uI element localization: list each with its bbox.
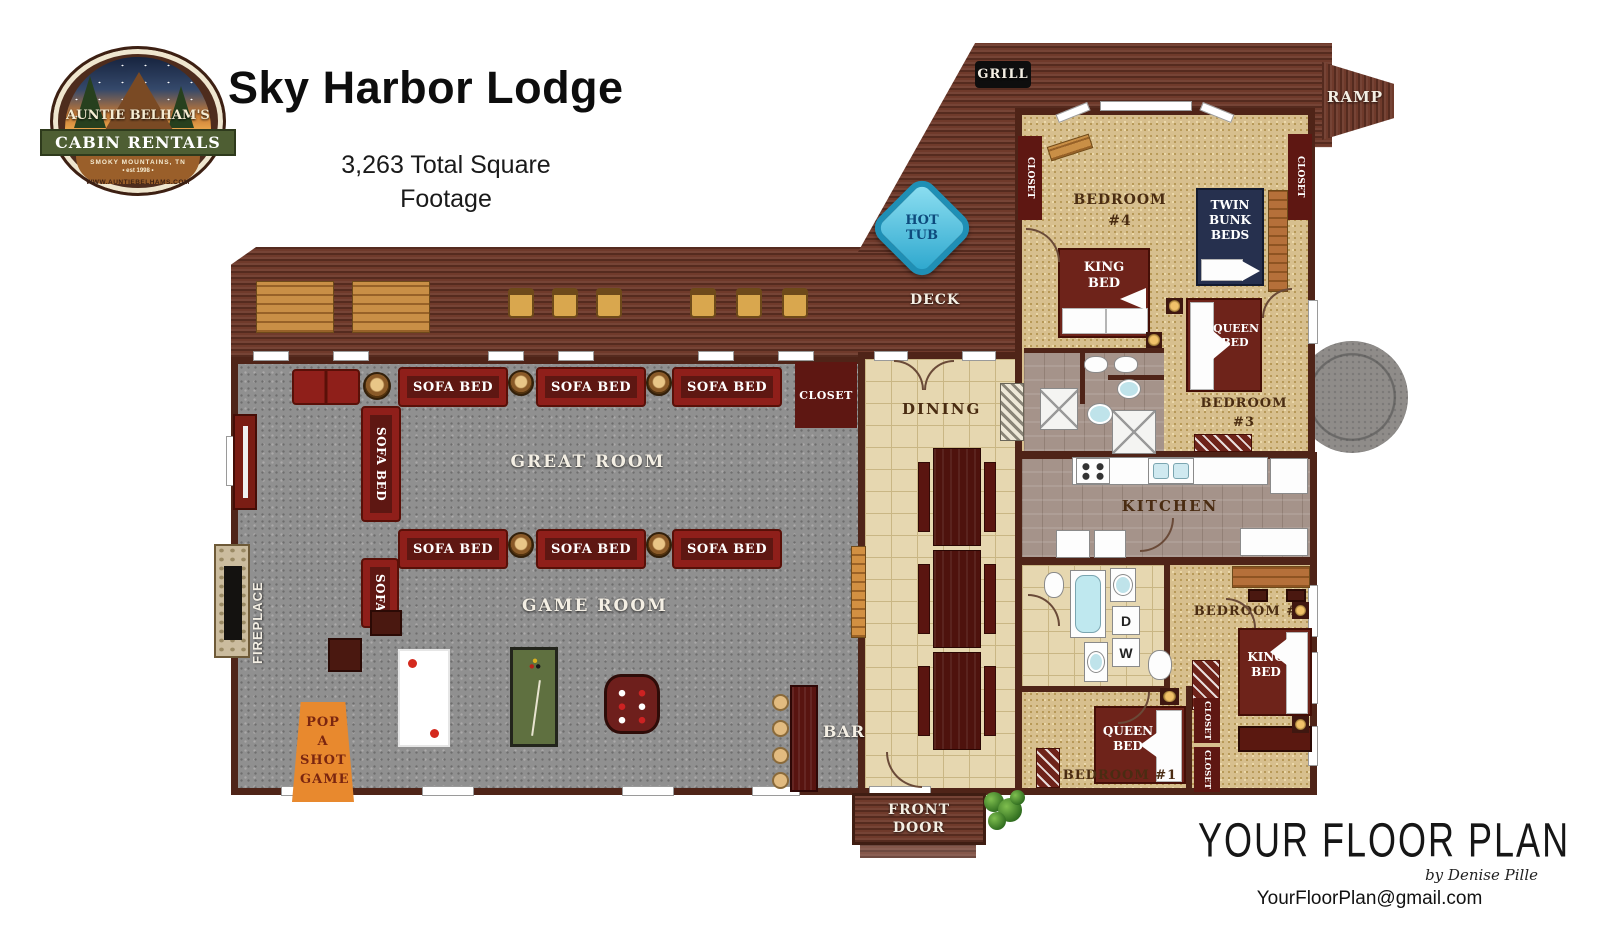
interior-wall (1080, 348, 1085, 404)
porch-step (860, 845, 976, 858)
dining-table (918, 652, 996, 750)
sofa-bed-label: SOFA BED (681, 538, 773, 560)
sink-basin (1153, 463, 1169, 479)
sofa-bed: SOFA BED (536, 367, 646, 407)
bar-stool (772, 772, 789, 789)
bedroom4-label: BEDROOM #4 (1072, 190, 1168, 232)
luggage-rack (1194, 434, 1252, 452)
sofa-bed-label: SOFA BED (407, 376, 499, 398)
deck-main (231, 247, 1015, 357)
sofa-bed-label: SOFA BED (545, 538, 637, 560)
deck-chair (736, 288, 762, 318)
bar-stool (772, 694, 789, 711)
dining-table (918, 550, 996, 648)
window (333, 351, 369, 361)
king-bed-bedroom4: KING BED (1058, 248, 1150, 338)
bar-counter (790, 685, 818, 792)
kitchen-sink (1148, 458, 1194, 484)
lamp-knob-icon (1148, 334, 1159, 345)
toilet (1148, 650, 1172, 680)
bed-linen (1106, 308, 1148, 334)
square-footage-line1: 3,263 Total Square (318, 148, 574, 182)
fireplace (214, 544, 250, 658)
picnic-table (352, 281, 430, 333)
round-table (646, 532, 672, 558)
stool (1286, 589, 1306, 602)
sink (1114, 575, 1132, 595)
bedroom1-closet-a: CLOSET (1194, 698, 1220, 743)
stool (1248, 589, 1268, 602)
bar-stool (772, 720, 789, 737)
bar-stool (772, 747, 789, 764)
shower (1112, 410, 1156, 454)
tub-basin (1075, 575, 1101, 633)
round-table (508, 532, 534, 558)
bush-icon (988, 812, 1006, 830)
window (778, 351, 814, 361)
logo-arc-top: AUNTIE BELHAM'S (50, 108, 226, 123)
deck-chair (782, 288, 808, 318)
bar-label: BAR (820, 722, 868, 741)
bed-linen (1201, 259, 1243, 281)
fireplace-label: FIREPLACE (250, 538, 268, 664)
bed-linen (1062, 308, 1106, 334)
window (253, 351, 289, 361)
grill-label: GRILL (977, 67, 1028, 82)
cabinet (1094, 530, 1126, 558)
toilet (1084, 356, 1108, 373)
cabinet (1056, 530, 1090, 558)
bedroom1-closet-b: CLOSET (1194, 747, 1220, 792)
bay-window (1100, 101, 1192, 111)
lamp-knob-icon (1295, 719, 1307, 731)
front-door-porch: FRONT DOOR (852, 793, 986, 845)
bedroom3-label: BEDROOM #3 (1196, 394, 1292, 432)
deck-label: DECK (902, 292, 968, 308)
nightstand-lamp (1292, 716, 1309, 733)
stove (1076, 458, 1110, 484)
great-room-closet: CLOSET (795, 362, 857, 428)
bedroom4-closet-right: CLOSET (1288, 134, 1312, 220)
window (698, 351, 734, 361)
window (422, 786, 474, 796)
queen-bed-bedroom3: QUEEN BED (1186, 298, 1262, 392)
bench (1232, 566, 1310, 588)
dining-bench (984, 462, 996, 532)
dining-bench (918, 564, 930, 634)
washer: W (1112, 638, 1140, 667)
toilet (1044, 572, 1064, 598)
poker-table (604, 674, 660, 734)
hot-tub-label: HOT TUB (896, 213, 948, 243)
sofa-bed-label: SOFA BED (545, 376, 637, 398)
king-bed-label: KING BED (1074, 260, 1134, 293)
floor-plan-page: AUNTIE BELHAM'S CABIN RENTALS SMOKY MOUN… (0, 0, 1599, 933)
dining-table (918, 448, 996, 546)
dryer: D (1112, 606, 1140, 635)
bush-icon (1010, 790, 1025, 805)
window (1308, 300, 1318, 344)
page-title: Sky Harbor Lodge (228, 62, 688, 114)
nightstand-lamp (1146, 332, 1162, 348)
paddle-icon (408, 659, 417, 668)
sofa-bed: SOFA BED (398, 367, 508, 407)
sink-basin (1173, 463, 1189, 479)
dining-table-top (933, 448, 981, 546)
your-floor-plan-brand: YOUR FLOOR PLAN (1198, 812, 1538, 869)
pop-a-shot-label: POP A SHOT GAME (300, 714, 346, 789)
sofa-bed: SOFA BED (672, 529, 782, 569)
round-table (508, 370, 534, 396)
sofa-bed: SOFA BED (672, 367, 782, 407)
sofa-bed-vertical: SOFA BED (361, 406, 401, 522)
round-table (646, 370, 672, 396)
dining-bench (984, 564, 996, 634)
linen-fold (1242, 261, 1260, 281)
hall-bench (851, 546, 866, 638)
interior-wall (1108, 375, 1164, 380)
toilet (1114, 356, 1138, 373)
deck-chair (508, 288, 534, 318)
square-footage-line2: Footage (318, 182, 574, 216)
grill-icon: GRILL (975, 61, 1031, 88)
window (874, 351, 908, 361)
sofa-bed-label: SOFA BED (681, 376, 773, 398)
tv-console (233, 414, 257, 510)
sink (1088, 652, 1104, 672)
sofa-bed: SOFA BED (398, 529, 508, 569)
twin-bunk-beds: TWIN BUNK BEDS (1196, 188, 1264, 286)
nightstand-lamp (1292, 602, 1309, 619)
sofa-bed-label: SOFA BED (407, 538, 499, 560)
deck-chair (596, 288, 622, 318)
billiard-balls-icon (527, 658, 543, 672)
deck-chair (690, 288, 716, 318)
bunk-beds-label: TWIN BUNK BEDS (1202, 198, 1258, 243)
firebox (224, 566, 242, 640)
pool-table (510, 647, 558, 747)
shower (1040, 388, 1078, 430)
dining-bench (918, 666, 930, 736)
bed-linen (1286, 632, 1308, 714)
king-bed-bedroom2: KING BED (1238, 628, 1312, 716)
sink (1118, 380, 1140, 398)
bedroom1-label: BEDROOM #1 (1060, 768, 1180, 783)
square-footage: 3,263 Total Square Footage (318, 148, 574, 216)
queen-bed-label: QUEEN BED (1102, 724, 1154, 754)
bathtub (1070, 570, 1106, 638)
sofa-bed-label: SOFA BED (370, 415, 392, 513)
nightstand-lamp (1166, 298, 1183, 314)
dresser (1268, 190, 1288, 292)
dining-label: DINING (902, 400, 980, 418)
ramp-label: RAMP (1322, 88, 1388, 106)
luggage-rack (1036, 748, 1060, 788)
cabin-rentals-logo: AUNTIE BELHAM'S CABIN RENTALS SMOKY MOUN… (50, 46, 226, 198)
deck-chair (552, 288, 578, 318)
sofa-bed: SOFA BED (536, 529, 646, 569)
lamp-knob-icon (1169, 300, 1181, 311)
sink (1088, 404, 1112, 424)
window (488, 351, 524, 361)
kitchen-island (1240, 528, 1308, 556)
nightstand-lamp (1160, 688, 1179, 705)
dining-bench (918, 462, 930, 532)
kitchen-label: KITCHEN (1110, 497, 1230, 515)
window (962, 351, 996, 361)
sofa-plain (292, 369, 360, 405)
brand-byline: by Denise Pille (1395, 866, 1538, 884)
picnic-table (256, 281, 334, 333)
round-table (363, 372, 391, 400)
lamp-knob-icon (1163, 691, 1176, 703)
front-door-label: FRONT DOOR (879, 801, 959, 837)
lamp-knob-icon (1295, 605, 1307, 617)
tv-icon (243, 426, 248, 498)
queen-bed-label: QUEEN BED (1213, 322, 1257, 350)
logo-ribbon: CABIN RENTALS (40, 129, 236, 156)
window (622, 786, 674, 796)
great-room-label: GREAT ROOM (510, 452, 666, 472)
pop-a-shot-game: POP A SHOT GAME (292, 702, 354, 802)
interior-wall (1024, 348, 1164, 353)
game-room-label: GAME ROOM (520, 596, 670, 616)
dining-table-top (933, 550, 981, 648)
refrigerator (1270, 458, 1308, 494)
stairs (1000, 383, 1024, 441)
dining-table-top (933, 652, 981, 750)
logo-est-line: • est 1998 • (50, 168, 226, 174)
bedroom4-closet-left: CLOSET (1018, 136, 1042, 220)
brand-email: YourFloorPlan@gmail.com (1252, 888, 1487, 910)
ottoman (370, 610, 402, 636)
window (558, 351, 594, 361)
dining-bench (984, 666, 996, 736)
cue-stick-icon (531, 680, 541, 736)
logo-subline: SMOKY MOUNTAINS, TN (50, 159, 226, 166)
bed-linen (1190, 302, 1214, 390)
sink-cabinet (1110, 568, 1136, 602)
paddle-icon (430, 729, 439, 738)
ping-pong-table (398, 649, 450, 747)
sink-cabinet (1084, 642, 1108, 682)
ottoman (328, 638, 362, 672)
logo-arc-bottom: WWW.AUNTIEBELHAMS.COM (50, 179, 226, 186)
